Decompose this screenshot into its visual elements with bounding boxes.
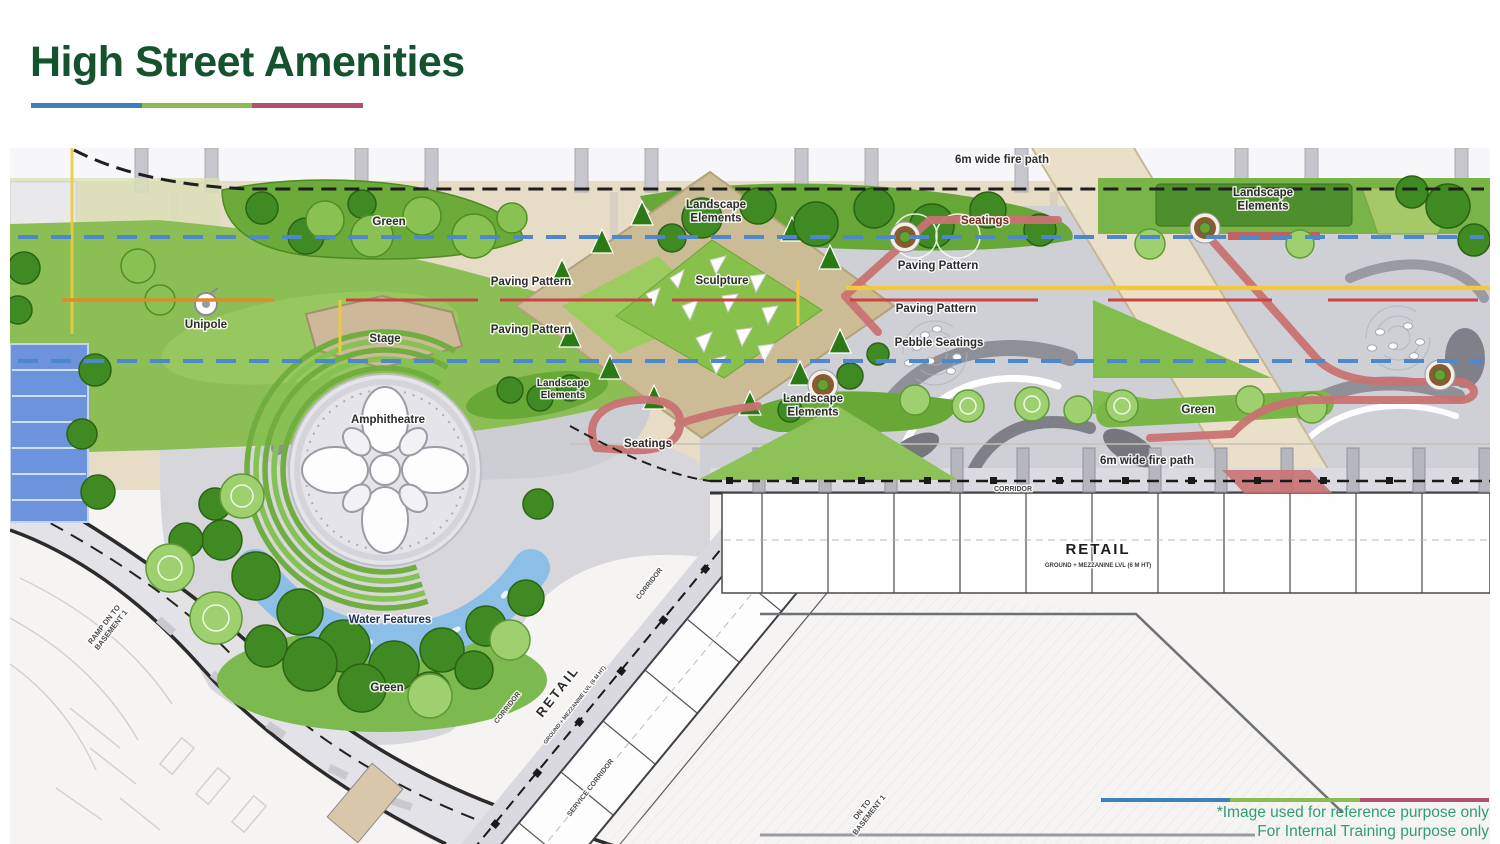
plan-label-green-bottom: Green bbox=[370, 682, 403, 694]
plan-label-landscape-elements-right: LandscapeElements bbox=[1233, 187, 1293, 213]
page-title: High Street Amenities bbox=[30, 38, 465, 87]
underline-segment-green bbox=[142, 103, 253, 108]
underline-segment-blue bbox=[31, 103, 142, 108]
plan-label-amphitheatre: Amphitheatre bbox=[351, 414, 425, 426]
plan-label-green-top: Green bbox=[372, 216, 405, 228]
plan-label-seatings-top: Seatings bbox=[961, 215, 1009, 227]
site-plan-figure: Green6m wide fire pathLandscapeElementsS… bbox=[10, 148, 1490, 844]
slide: High Street Amenities bbox=[0, 0, 1500, 844]
plan-label-green-right: Green bbox=[1181, 404, 1214, 416]
plan-label-corridor-retail-east: CORRIDOR bbox=[994, 486, 1032, 493]
plan-label-retail-east: RETAIL bbox=[1065, 541, 1130, 558]
plan-label-paving-pattern-left-2: Paving Pattern bbox=[491, 324, 572, 336]
footer-line-blue bbox=[1101, 798, 1230, 802]
footer-reference-note: *Image used for reference purpose only F… bbox=[1217, 803, 1489, 841]
plan-label-landscape-elements-small: LandscapeElements bbox=[537, 378, 590, 401]
plan-label-water-features: Water Features bbox=[349, 614, 432, 626]
plan-label-fire-path-top: 6m wide fire path bbox=[955, 154, 1049, 166]
footer-accent-line bbox=[1101, 798, 1489, 802]
underline-segment-maroon bbox=[252, 103, 363, 108]
plan-label-seatings-mid: Seatings bbox=[624, 438, 672, 450]
footer-note-line2: For Internal Training purpose only bbox=[1217, 822, 1489, 841]
plan-label-unipole: Unipole bbox=[185, 319, 227, 331]
plan-label-paving-pattern-right-2: Paving Pattern bbox=[896, 303, 977, 315]
plan-label-fire-path-bottom: 6m wide fire path bbox=[1100, 455, 1194, 467]
title-underline bbox=[31, 103, 363, 108]
footer-line-maroon bbox=[1360, 798, 1489, 802]
plan-label-pebble-seatings: Pebble Seatings bbox=[895, 337, 984, 349]
plan-label-retail-east-sub: GROUND + MEZZANINE LVL (6 M HT) bbox=[1045, 563, 1151, 569]
footer-note-line1: *Image used for reference purpose only bbox=[1217, 803, 1489, 822]
plan-label-paving-pattern-left-1: Paving Pattern bbox=[491, 276, 572, 288]
plan-label-landscape-elements-top: LandscapeElements bbox=[686, 199, 746, 225]
footer-line-green bbox=[1230, 798, 1359, 802]
plan-label-stage: Stage bbox=[369, 333, 400, 345]
plan-label-paving-pattern-right-1: Paving Pattern bbox=[898, 260, 979, 272]
plan-label-sculpture: Sculpture bbox=[695, 275, 748, 287]
plan-label-landscape-elements-mid: LandscapeElements bbox=[783, 393, 843, 419]
